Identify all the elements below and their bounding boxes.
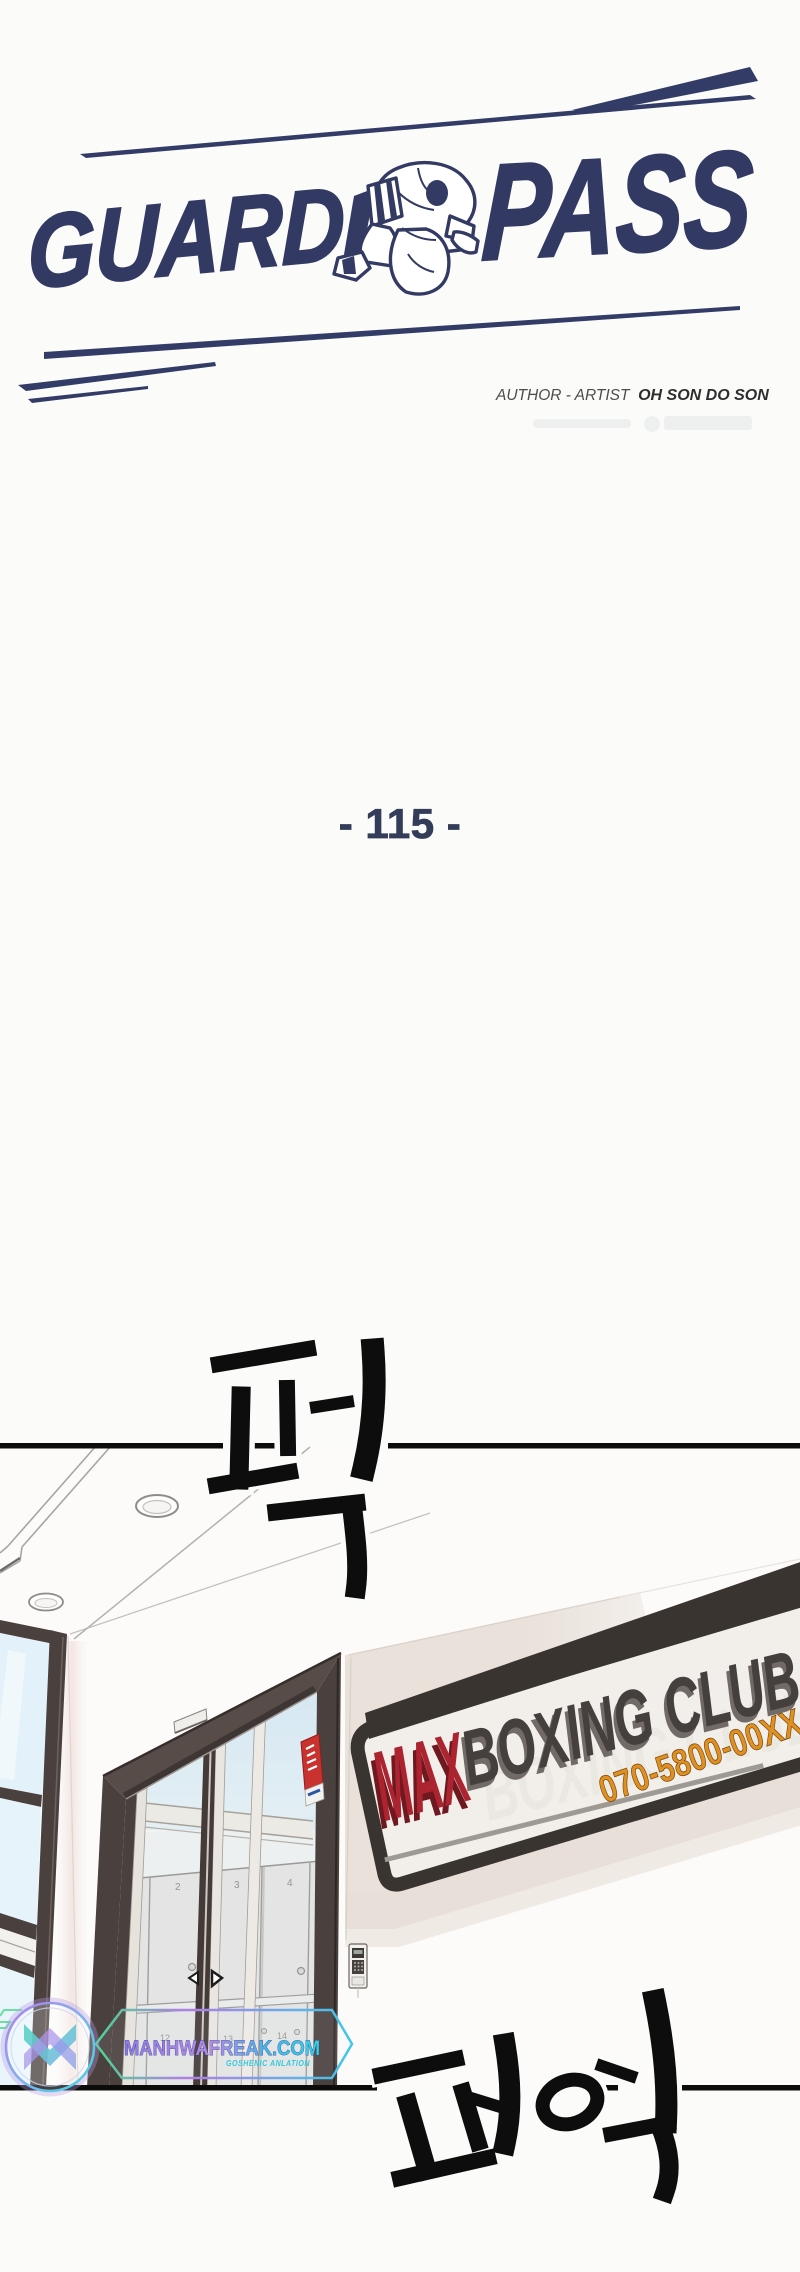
svg-text:GOSHENIC ANLATION: GOSHENIC ANLATION — [226, 2058, 310, 2068]
svg-text:MANHWAFREAK.COM: MANHWAFREAK.COM — [124, 2036, 320, 2060]
svg-text:- 115 -: - 115 - — [339, 800, 462, 847]
svg-text:AUTHOR - ARTIST OH SON DO SON: AUTHOR - ARTIST OH SON DO SON — [495, 387, 769, 404]
svg-text:PASS: PASS — [479, 122, 756, 289]
